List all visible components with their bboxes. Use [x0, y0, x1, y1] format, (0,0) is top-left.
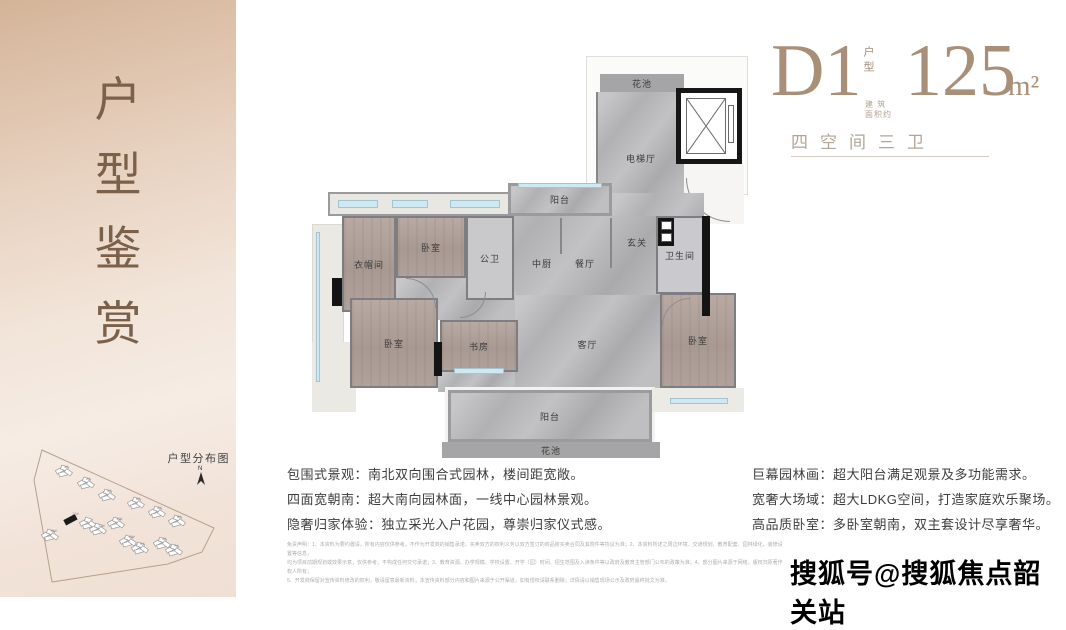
feature-item: 高品质卧室：多卧室朝南，双主套设计尽享奢华。 — [752, 512, 1066, 537]
building-label: 3# — [107, 488, 112, 493]
room-label-foyer: 玄关 — [627, 236, 647, 249]
corridor — [438, 372, 515, 392]
building-label: 13# — [72, 511, 79, 516]
disclaimer-line: 均为项目前期规划或效果示意，仅供参考，不构成任何交付承诺；3、教育资源、办学规模… — [287, 559, 783, 577]
room-label-dining: 餐厅 — [575, 257, 595, 270]
window — [338, 200, 378, 208]
wall-segment — [702, 216, 710, 316]
title-char: 户 — [95, 76, 142, 128]
room-living: 客厅 — [515, 295, 660, 394]
sitemap-drawing: 1# 2# 3# 6# 5# 8# 13# 12# 11# 15# 10# 9#… — [28, 444, 230, 592]
unit-code: D1 — [771, 34, 861, 108]
sitemap: 户型分布图 — [28, 444, 230, 592]
title-char: 赏 — [95, 300, 142, 352]
room-label: 电梯厅 — [626, 152, 656, 165]
page: { "sidebar": { "title_chars": ["户", "型",… — [0, 0, 1066, 597]
top-window-strip — [328, 192, 520, 216]
window — [450, 200, 500, 208]
wall-segment — [434, 342, 442, 376]
feature-item: 四面宽朝南：超大南向园林面，一线中心园林景观。 — [287, 487, 627, 512]
north-arrow-icon — [197, 472, 205, 485]
feature-list-left: 包围式景观：南北双向围合式园林，楼间距宽敞。 四面宽朝南：超大南向园林面，一线中… — [287, 462, 627, 537]
building-label: 5# — [157, 505, 162, 510]
room-label: 阳台 — [540, 410, 560, 423]
room-label: 卧室 — [421, 241, 441, 254]
building-label: 12# — [98, 523, 105, 528]
room-label-kitchen: 中厨 — [532, 257, 552, 270]
feature-list-right: 巨幕园林画：超大阳台满足观景及多功能需求。 宽奢大场域：超大LDKG空间，打造家… — [752, 462, 1066, 537]
building-label: 1# — [64, 464, 69, 469]
room-bedroom-top: 卧室 — [396, 216, 466, 278]
feature-item: 巨幕园林画：超大阳台满足观景及多功能需求。 — [752, 462, 1066, 487]
area-note-line1: 建 筑 — [865, 100, 886, 109]
window — [392, 200, 428, 208]
unit-header: D1 户型 建 筑 面积约 125 m² 四空间三卫 — [765, 34, 1065, 164]
north-label: N — [198, 466, 202, 472]
partition-wall — [610, 218, 612, 268]
room-flower-bed-bottom: 花池 — [442, 442, 660, 458]
room-label: 客厅 — [577, 338, 597, 351]
elevator-shaft — [676, 88, 742, 164]
wall-segment — [332, 278, 342, 306]
room-flower-bed-top: 花池 — [600, 74, 684, 92]
title-char: 型 — [95, 151, 142, 203]
building-label: 6# — [136, 496, 141, 501]
window — [670, 398, 728, 404]
watermark: 搜狐号@搜狐焦点韶关站 — [790, 552, 1066, 630]
page-title: 户 型 鉴 赏 — [86, 76, 150, 352]
room-study: 书房 — [440, 320, 518, 372]
floorplan: 花池 电梯厅 阳台 客厅 阳台 花池 公卫 卫生间 卧室 衣帽间 — [308, 52, 770, 464]
unit-subtitle: 四空间三卫 — [791, 128, 936, 153]
building-label: 15# — [50, 528, 57, 533]
elevator-counterweight — [728, 105, 734, 143]
fixture — [661, 221, 672, 230]
title-char: 鉴 — [95, 225, 142, 277]
room-public-bath: 公卫 — [466, 216, 514, 300]
area-value: 125 — [905, 34, 1016, 108]
building-label: 8# — [177, 514, 182, 519]
building-label: 4# — [162, 536, 167, 541]
room-label: 卧室 — [688, 334, 708, 347]
feature-item: 宽奢大场域：超大LDKG空间，打造家庭欢乐聚场。 — [752, 487, 1066, 512]
room-label: 卧室 — [384, 337, 404, 350]
area-note: 建 筑 面积约 — [865, 100, 901, 120]
window — [316, 232, 320, 382]
feature-item: 隐奢归家体验：独立采光入户花园，尊崇归家仪式感。 — [287, 512, 627, 537]
disclaimer-line: 免责声明：1、本资料为要约邀请，所有内容仅供参考，不作为开发商的销售承诺，买卖双… — [287, 541, 783, 559]
feature-item: 包围式景观：南北双向围合式园林，楼间距宽敞。 — [287, 462, 627, 487]
room-label: 衣帽间 — [354, 258, 384, 271]
room-label: 书房 — [469, 340, 489, 353]
building-label: 11# — [116, 516, 123, 521]
room-label: 花池 — [632, 77, 652, 90]
disclaimer-line: 5、开发商保留对宣传资料修改的权利，敬请留意最新资料；本宣传资料部分内容和图片来… — [287, 577, 783, 586]
window — [454, 368, 504, 374]
partition-wall — [560, 218, 562, 254]
disclaimer: 免责声明：1、本资料为要约邀请，所有内容仅供参考，不作为开发商的销售承诺，买卖双… — [287, 541, 783, 586]
fixture — [661, 233, 672, 242]
building-label: 2# — [86, 476, 91, 481]
elevator-car-icon — [686, 98, 726, 154]
room-label: 花池 — [541, 444, 561, 457]
subtitle-underline — [791, 156, 989, 157]
window — [518, 183, 602, 188]
building-label: 10# — [128, 534, 135, 539]
room-label: 卫生间 — [665, 249, 695, 262]
area-note-line2: 面积约 — [865, 110, 892, 119]
building-label: 9# — [140, 541, 145, 546]
room-label: 公卫 — [480, 252, 500, 265]
room-bedroom-left: 卧室 — [350, 298, 438, 388]
building-label: 7# — [174, 543, 179, 548]
room-balcony-bottom: 阳台 — [448, 390, 652, 442]
area-unit: m² — [1008, 70, 1039, 103]
sidebar: 户 型 鉴 赏 户型分布图 — [0, 0, 236, 597]
unit-code-note: 户型 — [860, 46, 876, 76]
room-label: 阳台 — [550, 193, 570, 206]
